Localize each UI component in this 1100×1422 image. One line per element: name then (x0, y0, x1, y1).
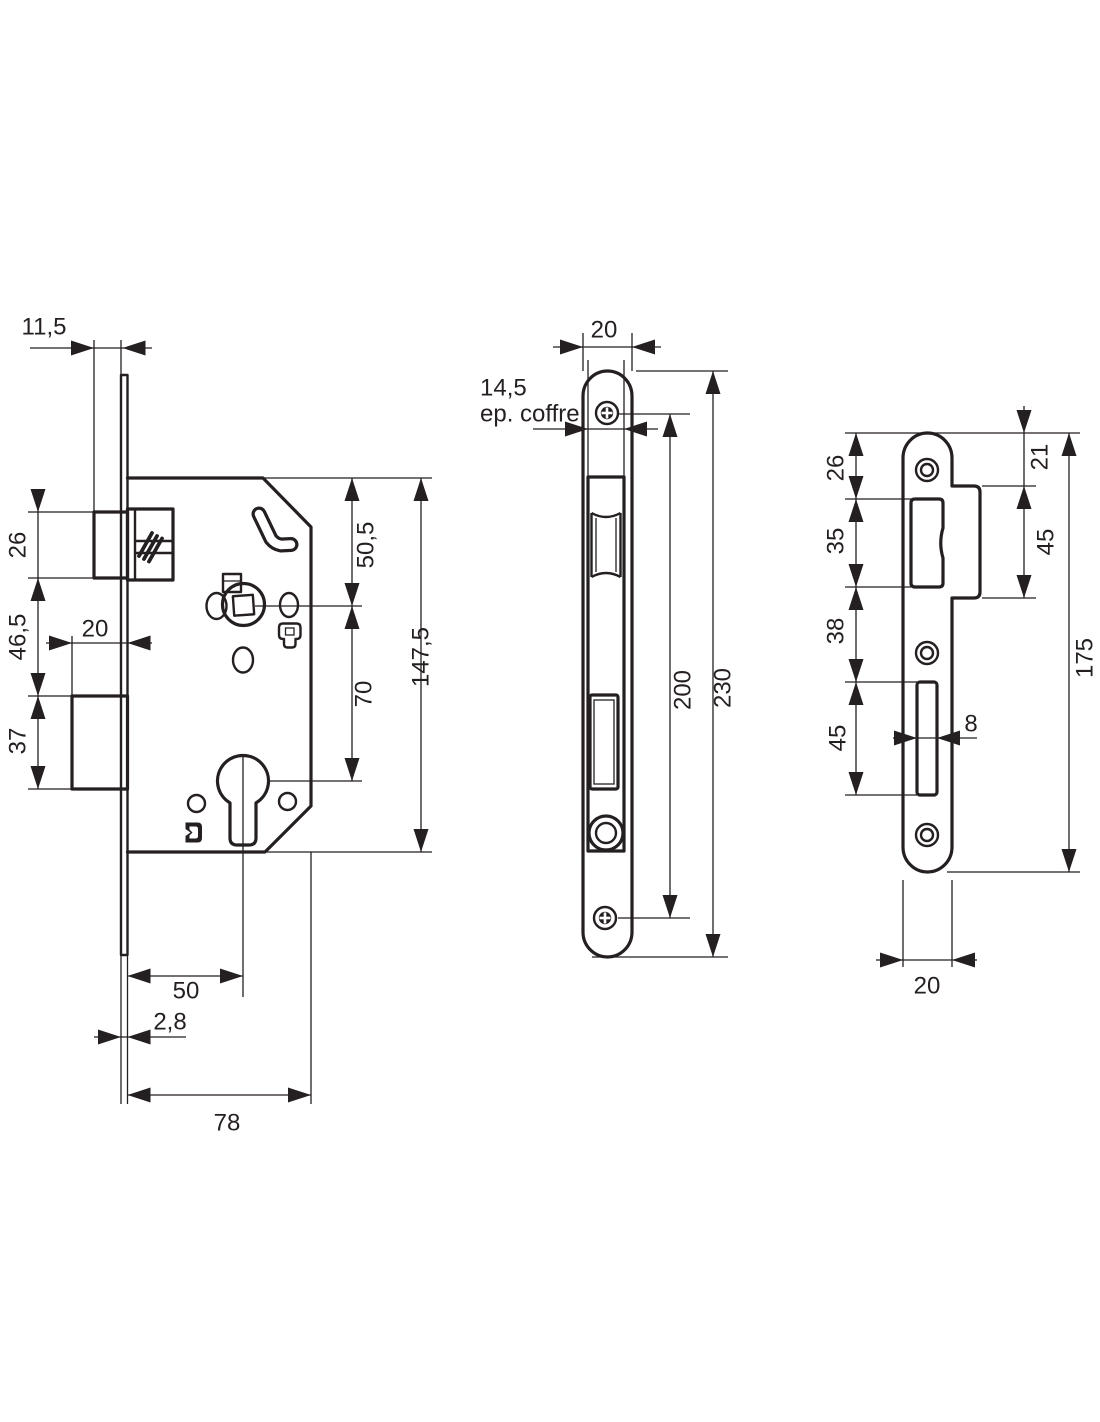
dim-follower-to-cylinder: 70 (351, 681, 378, 708)
latch-bolt-head (94, 512, 128, 578)
faceplate-edge (121, 375, 128, 955)
strike-latch-opening (911, 499, 943, 587)
strike-plate-dimensions: 26 35 38 45 21 45 175 8 20 (823, 406, 1099, 1000)
faceplate-view (583, 371, 632, 957)
spring-plug (279, 624, 301, 648)
dim-faceplate-height: 230 (710, 668, 737, 708)
strike-screw-top (916, 459, 938, 481)
dim-deadbolt-height: 37 (5, 728, 32, 755)
dim-tab-height: 45 (1033, 529, 1060, 556)
strike-screw-middle (916, 642, 938, 664)
oval-hole-right (280, 593, 298, 617)
strike-plate-view (903, 433, 980, 872)
curved-slot (259, 514, 291, 545)
dim-latch-opening-height: 35 (823, 528, 850, 555)
dim-case-thickness-label: ep. coffre (480, 401, 580, 428)
dim-strike-height: 175 (1072, 638, 1099, 678)
dim-case-height: 147,5 (408, 627, 435, 687)
dim-faceplate-width: 20 (591, 317, 618, 344)
dim-case-thickness: 14,5 (480, 375, 527, 402)
cylinder-hole (589, 816, 623, 850)
dim-faceplate-thickness: 2,8 (153, 1009, 186, 1036)
dim-slot-height: 45 (825, 725, 852, 752)
fixing-hole-right (279, 793, 296, 810)
dim-top-to-latch-opening: 26 (823, 455, 850, 482)
dim-strike-width: 20 (914, 973, 941, 1000)
dim-faceplate-to-latch: 11,5 (22, 314, 67, 341)
dim-backset: 50 (173, 978, 200, 1005)
lock-case-outline (128, 478, 312, 852)
deadbolt (72, 696, 128, 789)
spindle-square (233, 595, 254, 616)
dim-case-depth: 78 (214, 1110, 241, 1137)
lock-body-view (72, 375, 311, 955)
dim-slot-width: 8 (964, 711, 977, 738)
dim-deadbolt-throw: 20 (82, 616, 109, 643)
dim-top-to-follower: 50,5 (353, 522, 380, 569)
technical-drawing: 11,5 26 46,5 37 20 50,5 70 147,5 50 2,8 … (0, 0, 1100, 1422)
dim-latch-to-slot-gap: 38 (823, 618, 850, 645)
latch-spring-hatch (139, 533, 162, 562)
lock-body-dimensions: 11,5 26 46,5 37 20 50,5 70 147,5 50 2,8 … (5, 314, 435, 1137)
dim-latch-to-deadbolt: 46,5 (5, 614, 32, 661)
spindle-follower (223, 584, 265, 626)
latch-opening (592, 513, 621, 577)
screw-bottom (594, 907, 616, 929)
dim-latch-height: 26 (5, 532, 32, 559)
deadbolt-opening (590, 695, 618, 789)
fixing-hole-left (188, 795, 205, 812)
dim-screw-spacing: 200 (670, 670, 697, 710)
screw-top (596, 402, 618, 424)
dim-top-to-tab: 21 (1027, 444, 1054, 471)
strike-screw-bottom (916, 824, 938, 846)
oval-hole-lower (233, 648, 253, 673)
case-front-recess (588, 477, 624, 851)
clip-part (186, 823, 203, 843)
